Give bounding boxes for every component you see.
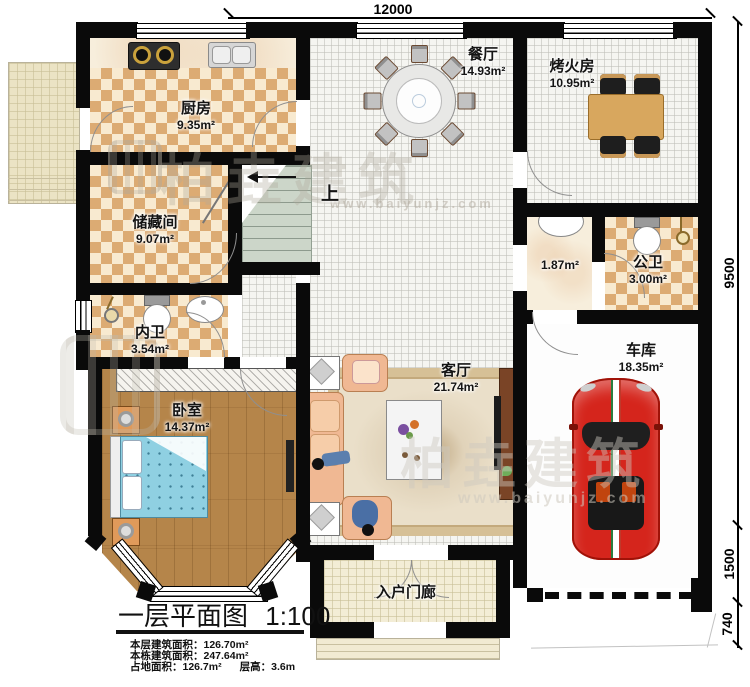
living-tv xyxy=(494,396,501,470)
stove-burner xyxy=(156,46,174,64)
wall xyxy=(296,146,310,165)
room-label-garage: 车库 18.35m² xyxy=(619,342,664,374)
wall xyxy=(448,545,514,560)
flower-decor xyxy=(410,420,419,429)
table-item xyxy=(402,452,408,458)
dimension-right-bottom: 740 xyxy=(719,612,735,635)
plan-scale: 1:100 xyxy=(265,601,330,631)
car-engine-detail xyxy=(596,482,610,502)
wall xyxy=(513,203,712,217)
terrace-steps xyxy=(8,168,78,201)
room-area: 18.35m² xyxy=(619,360,664,374)
wall xyxy=(513,22,527,152)
dining-chair xyxy=(411,45,428,63)
room-name: 烤火房 xyxy=(549,58,594,76)
info-line-3: 占地面积：126.7m²层高：3.6m xyxy=(130,662,295,673)
room-name: 卧室 xyxy=(165,402,210,420)
room-label-bedroom: 卧室 14.37m² xyxy=(165,402,210,434)
stair-direction-line xyxy=(258,176,296,178)
shower-pole xyxy=(680,217,682,232)
car-stripe xyxy=(611,380,621,558)
driveway-edge-side xyxy=(707,613,716,647)
toilet xyxy=(633,226,661,255)
wall xyxy=(446,622,510,638)
info-value: 126.7m² xyxy=(183,661,222,673)
sofa-cushion xyxy=(310,400,340,432)
table-item xyxy=(414,455,420,461)
dimension-line-right xyxy=(737,22,739,648)
plan-title: 一层平面图 1:100 xyxy=(118,596,330,633)
room-area: 10.95m² xyxy=(549,76,594,90)
room-name: 储藏间 xyxy=(132,214,177,232)
wall xyxy=(296,283,310,562)
wall xyxy=(76,22,90,108)
leaf-decor xyxy=(406,432,413,439)
stair-arrow xyxy=(247,171,258,183)
wall xyxy=(228,262,320,275)
window xyxy=(75,300,92,333)
car xyxy=(572,378,660,560)
wall xyxy=(296,545,374,560)
wall xyxy=(513,324,527,588)
wall xyxy=(513,217,527,245)
driveway-edge xyxy=(531,644,718,648)
fire-room-table xyxy=(588,94,664,140)
wall xyxy=(513,188,527,203)
room-name: 内卫 xyxy=(131,324,169,342)
room-name: 公卫 xyxy=(629,254,667,272)
floor-drain xyxy=(104,308,119,323)
wall xyxy=(513,291,527,310)
info-value: 3.6m xyxy=(271,661,295,673)
wall xyxy=(76,150,90,302)
room-label-public-wc: 公卫 3.00m² xyxy=(629,254,667,286)
room-name: 厨房 xyxy=(177,100,215,118)
wall xyxy=(496,560,510,624)
shower-head xyxy=(676,231,690,245)
plan-title-label: 一层平面图 xyxy=(118,601,248,631)
person-head xyxy=(312,458,324,470)
window xyxy=(356,23,467,39)
room-label-storage: 储藏间 9.07m² xyxy=(132,214,177,246)
room-area: 3.54m² xyxy=(131,342,169,356)
room-area: 9.35m² xyxy=(177,118,215,132)
car-engine-detail xyxy=(622,482,636,502)
room-area: 1.87m² xyxy=(541,258,579,272)
room-label-porch: 入户门廊 xyxy=(376,584,436,602)
room-area: 14.37m² xyxy=(165,420,210,434)
fire-room-chair xyxy=(600,74,626,96)
dining-table-center xyxy=(412,94,426,108)
stairs-up-label: 上 xyxy=(321,184,339,206)
room-label-fire: 烤火房 10.95m² xyxy=(549,58,594,90)
wall xyxy=(527,588,543,602)
wall xyxy=(513,310,533,324)
car-windshield xyxy=(582,422,650,450)
room-name: 车库 xyxy=(619,342,664,360)
porch-steps xyxy=(316,638,500,660)
title-underline xyxy=(116,630,304,634)
room-name: 餐厅 xyxy=(461,46,506,64)
lamp xyxy=(118,523,134,539)
room-name: 客厅 xyxy=(434,362,479,380)
room-label-kitchen: 厨房 9.35m² xyxy=(177,100,215,132)
room-label-inner-wc: 内卫 3.54m² xyxy=(131,324,169,356)
window xyxy=(563,23,677,39)
wall xyxy=(224,357,240,369)
room-area: 14.93m² xyxy=(461,64,506,78)
dimension-right-main: 9500 xyxy=(721,257,737,288)
kitchen-counter xyxy=(90,38,296,68)
pillow xyxy=(122,440,142,474)
dining-chair xyxy=(411,139,428,157)
dimension-right-mid: 1500 xyxy=(721,548,737,579)
room-label-basin-alcove: 1.87m² xyxy=(541,258,579,272)
room-area: 21.74m² xyxy=(434,380,479,394)
wall xyxy=(76,283,242,295)
car-mirror xyxy=(569,424,578,430)
wall xyxy=(296,22,310,100)
room-name: 入户门廊 xyxy=(376,584,436,602)
wall xyxy=(577,310,698,324)
car-mirror xyxy=(654,424,663,430)
info-block: 本层建筑面积：126.70m² 本栋建筑面积：247.64m² 占地面积：126… xyxy=(130,640,295,673)
info-label: 层高： xyxy=(240,661,272,673)
room-label-dining: 餐厅 14.93m² xyxy=(461,46,506,78)
pillow xyxy=(122,476,142,510)
fire-room-chair xyxy=(634,74,660,96)
info-label: 占地面积： xyxy=(130,661,183,673)
room-label-living: 客厅 21.74m² xyxy=(434,362,479,394)
fire-room-chair xyxy=(600,136,626,158)
window xyxy=(136,23,250,39)
armchair-cushion xyxy=(352,360,380,384)
stove-burner xyxy=(133,46,151,64)
wall xyxy=(698,22,712,582)
wall xyxy=(691,578,712,612)
room-area: 9.07m² xyxy=(132,232,177,246)
fire-room-chair xyxy=(634,136,660,158)
sink-basin xyxy=(232,46,251,64)
dimension-top: 12000 xyxy=(374,1,413,17)
dining-chair xyxy=(364,93,382,110)
floor-plan-canvas: 厨房 9.35m² 餐厅 14.93m² 烤火房 10.95m² 储藏间 9.0… xyxy=(0,0,750,687)
basin-faucet xyxy=(201,300,206,305)
room-area: 3.00m² xyxy=(629,272,667,286)
garage-door xyxy=(545,592,693,599)
coffee-table xyxy=(386,400,442,480)
dimension-line-top xyxy=(228,17,712,19)
sink-basin xyxy=(212,46,231,64)
bedroom-tv xyxy=(286,440,294,492)
person-head xyxy=(362,524,374,536)
watermark-logo xyxy=(108,140,162,194)
dining-chair xyxy=(458,93,476,110)
plant xyxy=(502,466,512,476)
